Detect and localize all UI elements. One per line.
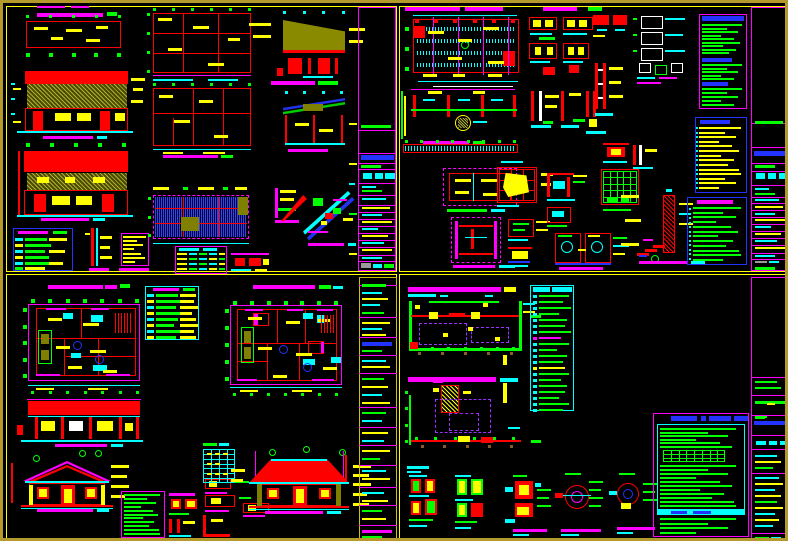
s4-legend-header-seg <box>533 287 550 292</box>
s4-specs-text2-line <box>660 481 720 483</box>
s1-elev2-markers-mark <box>74 143 78 147</box>
s2-beam-elev-extra-seg <box>473 121 487 123</box>
s1-legend-rows-seg <box>25 244 51 247</box>
s4-detail-group2-seg <box>455 521 477 523</box>
s3-finish-table-rows-seg <box>180 318 196 321</box>
s3-finish-table-rows-seg <box>180 330 194 333</box>
s2-footing-dets-seg <box>603 143 629 145</box>
s2-iso-box2 <box>655 65 667 75</box>
s2-notes-top-text3-line <box>702 92 727 94</box>
s4-specs-text2-line <box>660 469 708 471</box>
s2-found-dimlines-seg <box>508 17 509 75</box>
s1-detail-right-seg <box>231 253 269 255</box>
s3-gable-marker1 <box>79 450 86 457</box>
s1-elev1-caption-seg <box>97 136 107 139</box>
s3-titleblock-content-seg <box>362 342 392 346</box>
s4-detail-valve2-seg <box>589 497 603 499</box>
s1-long-section-labels-seg <box>66 29 82 32</box>
s3-hip-dims-seg <box>343 451 344 481</box>
s2-det-box2-seg <box>508 247 532 249</box>
s2-left-details-seg <box>613 15 627 25</box>
s2-tbeam-fills-seg <box>578 47 584 55</box>
s3-finish-table-rows-seg <box>147 324 154 327</box>
s1-stair-detail-seg <box>280 190 296 193</box>
s2-titleblock-content-seg <box>755 206 783 208</box>
s4-sanit-grounds-mark <box>443 445 446 448</box>
s3-plan1-room-labels-seg <box>90 350 106 353</box>
s2-wallsect-hatch <box>664 196 674 252</box>
s1-plan2-walls-seg <box>153 113 251 114</box>
s3-titleblock-content-seg <box>362 366 390 368</box>
s4-elec-symbols-seg <box>495 337 500 341</box>
s2-colbase-details-seg <box>545 95 559 98</box>
s4-specs-minitable-col <box>694 450 695 462</box>
s4-legend-rows-seg <box>539 355 567 357</box>
s3-titleblock-content-seg <box>362 536 382 538</box>
s2-found-dims-below-seg <box>418 81 518 82</box>
s2-notes-top-text2-line <box>702 64 742 66</box>
s1-titleblock-content-seg <box>361 263 371 268</box>
s2-toilet-side-seg <box>553 181 565 189</box>
s1-section1-labels-l-seg <box>249 23 271 26</box>
s2-notes-right-text-line <box>693 240 733 242</box>
s2-titleblock-dividers-seg <box>751 253 788 254</box>
s2-spec-rows-line <box>699 141 719 143</box>
s2-found-columns-mark <box>415 19 419 23</box>
s4-specs-text1-line <box>660 428 736 430</box>
s1-schedule-cells-seg <box>219 268 225 270</box>
s3-plan1-markers-left-mark <box>23 308 27 312</box>
s1-legend-rows-seg <box>25 267 45 270</box>
s2-found-labels-seg <box>483 27 499 30</box>
s4-legend-rows-seg <box>539 403 569 405</box>
s3-titleblock-content-seg <box>362 284 386 287</box>
s1-plan2-dims-seg <box>203 152 225 154</box>
s4-detail-valve2-seg <box>589 505 601 507</box>
s3-titleblock-dividers-seg <box>359 525 397 526</box>
s2-notes-right-text-line <box>693 245 726 247</box>
s2-spec-ticks-mark <box>696 164 698 166</box>
s3-titleblock-content-seg <box>362 334 386 336</box>
s3-winsched-header-seg <box>203 443 217 446</box>
s4-title2-seg <box>500 378 518 382</box>
s1-legend-rows-seg <box>18 231 48 234</box>
s2-found-dims-below-seg <box>423 74 437 77</box>
s4-legend-rows-seg <box>539 319 567 321</box>
s1-plan1-markers-left-mark <box>147 70 150 73</box>
s2-toilet-side-seg <box>567 177 570 197</box>
s1-schedule-cells-seg <box>199 258 207 260</box>
s2-titleblock-content-seg <box>755 213 775 215</box>
s2-caja-items-seg <box>552 211 564 217</box>
s3-plan2-wall-accents-seg <box>317 309 333 311</box>
s2-toilet-side-seg <box>547 199 575 201</box>
s1-elev2-openings-seg <box>76 196 92 205</box>
s3-finish-table-rows-seg <box>147 330 154 333</box>
s4-titleblock-content-seg <box>755 519 779 521</box>
s4-sanit-fittings-mark <box>493 437 496 440</box>
s3-notes-text-line <box>124 494 160 496</box>
s2-colbase-details-seg <box>589 119 597 127</box>
s3-corner-det-items-seg <box>205 510 229 512</box>
s2-beam-elev-seg <box>411 109 517 111</box>
s2-notes-top-text1-line <box>702 31 738 33</box>
s4-details-label-seg <box>407 466 429 469</box>
s2-beam-elev-seg <box>481 95 484 117</box>
s1-section2-body-seg <box>295 123 309 126</box>
s2-wc-bowl2 <box>591 241 603 253</box>
s1-titleblock-dividers-seg <box>358 247 396 248</box>
s3-titleblock-content-seg <box>362 478 390 480</box>
s2-notes-top-text1-line <box>702 45 723 47</box>
s1-vertical-detail-seg <box>100 256 112 259</box>
s1-section1-body-seg <box>277 68 283 76</box>
s2-tank-section-lines-seg <box>455 221 458 259</box>
s1-small-table-rows-line <box>123 248 134 250</box>
s1-schedule-cells-seg <box>189 263 197 265</box>
s1-legend-rows-seg <box>15 267 23 270</box>
s1-roofplan-labels-seg <box>235 187 247 190</box>
s1-plan1-markers-top-mark <box>172 8 175 11</box>
s3-notes-text-line <box>124 533 160 535</box>
s2-wc-labels-seg <box>613 253 625 255</box>
s3-title2-seg <box>319 285 331 289</box>
s2-wallsect-steps-seg <box>653 245 665 248</box>
cad-drawing-canvas <box>0 0 788 541</box>
s1-title-seg <box>107 12 117 16</box>
s2-notes-top-text2-line <box>702 75 721 77</box>
s3-plan1-wall-accents-seg <box>46 308 66 310</box>
s1-plan2-markers-mark <box>172 83 175 86</box>
s2-spec-ticks-mark <box>696 159 698 161</box>
s1-sitemap-items-seg <box>321 221 327 225</box>
s1-section2-markers-mark <box>322 91 325 94</box>
s3-winsched-cells-seg <box>215 473 220 475</box>
s1-titleblock-dividers-seg <box>358 163 396 164</box>
s1-titleblock-dividers-seg <box>358 219 396 220</box>
s3-notes-text-line <box>124 525 149 527</box>
s2-notes-right-nums-mark <box>689 258 691 260</box>
s3-finish-table-rows-seg <box>180 336 196 339</box>
s1-mid-labels-seg <box>131 78 145 81</box>
s4-sanit-labels-seg <box>503 383 507 403</box>
s2-spec-ticks-mark <box>696 187 698 189</box>
s2-notes-top-text1-line <box>702 38 734 40</box>
s1-section2-body-seg <box>285 115 287 143</box>
s4-sanit-walls-seg <box>409 395 411 445</box>
s4-detail-valve1-seg <box>537 489 551 491</box>
s2-left-details-seg <box>597 29 607 31</box>
s1-elev1-openings-seg <box>77 113 91 121</box>
s1-elev2-ground-seg <box>18 151 20 215</box>
s2-footing-dets-seg <box>603 161 627 163</box>
s3-gable-labels-seg <box>111 475 127 478</box>
s3-titleblock-content-seg <box>362 432 388 434</box>
s2-mesh-grid-row <box>603 177 637 178</box>
s1-section2-caption-seg <box>288 149 328 152</box>
s2-spec-rows-line <box>699 132 725 134</box>
s3-titleblock-dividers-seg <box>359 505 397 506</box>
s3-finish-table-rows-seg <box>156 300 180 303</box>
s3-plan1-room-labels-seg <box>56 346 70 349</box>
s1-vertical-detail-seg <box>85 233 90 235</box>
s2-beam-det-fills-seg <box>533 20 541 27</box>
s1-sitemap-items-seg <box>325 213 333 219</box>
s1-schedule-cells-seg <box>177 258 187 260</box>
s3-winsched-cells-seg <box>223 473 228 475</box>
s4-sanit-fittings-mark <box>454 437 457 440</box>
s1-axis-markers-mid-mark <box>49 53 53 57</box>
s4-legend-rows-seg <box>539 337 561 339</box>
s1-elev2-caption-seg <box>93 218 105 221</box>
s2-wallsect-steps-seg <box>645 249 657 252</box>
s1-stair-detail-seg <box>275 188 278 218</box>
s3-plan2-car-body-seg <box>244 347 251 359</box>
s4-titleblock-content-seg <box>755 537 769 540</box>
s2-found-axes-mark <box>405 67 409 71</box>
s3-winsched-header-seg <box>219 443 229 446</box>
s4-specs-text1-line <box>660 439 696 441</box>
s4-elec-grounds-mark <box>464 352 467 355</box>
s3-plan1-markers-bottom-mark <box>84 391 87 394</box>
s3-title2-seg <box>253 285 315 289</box>
s2-tank-caption-seg <box>453 265 495 268</box>
s3-titleblock-content-seg <box>362 492 384 494</box>
s2-det-box2-seg <box>512 251 528 259</box>
s4-specs-text2-line <box>660 465 736 467</box>
s4-legend-rows-seg <box>539 367 565 369</box>
s2-notes-top-text1-line <box>702 24 742 26</box>
s1-plan2-labels-seg <box>199 100 213 103</box>
s4-detail-group1-seg <box>427 481 433 491</box>
s3-title1-seg <box>120 284 130 288</box>
s3-lshape-det-seg <box>211 519 223 522</box>
s2-white-box-labels-seg <box>665 50 685 52</box>
s2-spec-rows-line <box>699 159 734 161</box>
s2-notes-right-header-seg <box>697 200 733 204</box>
s2-det-box1-items-seg <box>513 229 525 231</box>
s2-footing-ticks-mark <box>467 140 470 143</box>
s3-titleblock-dividers-seg <box>359 317 397 318</box>
s2-found-labels-seg <box>448 57 462 60</box>
s1-titleblock-dividers-seg <box>358 240 396 241</box>
s1-elev1-caption-seg <box>43 136 93 139</box>
s2-column-fill2 <box>503 51 515 66</box>
s3-corner-det-items-seg <box>243 515 265 517</box>
s1-elev2-roofband <box>24 151 128 172</box>
s4-detail-valve2-seg <box>589 481 603 483</box>
s3-gable-labels-seg <box>111 485 129 488</box>
s4-specs-text3-line <box>660 518 736 520</box>
s4-sanit-axis-mark <box>405 440 408 443</box>
s2-colbase-details-seg <box>539 91 542 121</box>
s4-detail-valve3-seg <box>621 503 631 509</box>
s2-titleblock-dividers-seg <box>751 224 788 225</box>
s3-finish-table-rows-seg <box>147 318 154 321</box>
s1-titleblock-content-seg <box>362 235 388 237</box>
s4-elec-feeder-seg <box>411 315 519 317</box>
s1-section1-markers-mark <box>303 11 306 14</box>
s4-detail-group2-seg <box>455 527 471 529</box>
s2-white-box-labels-seg <box>665 34 683 36</box>
s3-notes-text-line <box>124 510 153 512</box>
s3-titleblock-content-seg <box>362 500 388 502</box>
s1-vertical-detail-seg <box>91 228 94 266</box>
s3-finish-table-rows-seg <box>156 294 178 297</box>
s2-found-symbol <box>461 41 469 49</box>
s4-legend-rows-seg <box>533 301 537 304</box>
s1-plan1-walls-seg <box>183 13 184 73</box>
s4-titleblock-dividers-seg <box>751 395 788 396</box>
s3-notes-text-line <box>124 498 147 500</box>
s3-titleblock-content-seg <box>362 304 380 306</box>
s1-vertical-detail-seg <box>89 268 109 271</box>
s4-legend-rows-seg <box>539 379 561 381</box>
s2-column-fill1 <box>413 26 425 38</box>
s2-titleblock-dividers-seg <box>751 163 788 164</box>
s2-colbase-details-seg <box>561 91 564 121</box>
s4-titleblock-content-seg <box>755 513 775 515</box>
s4-specs-text2-line <box>660 497 712 499</box>
s3-plan2-partitions-seg <box>277 309 278 343</box>
s3-plan2-markers-left-mark <box>225 326 229 330</box>
s4-legend-rows-seg <box>539 361 563 363</box>
s3-titleblock-content-seg <box>362 350 382 352</box>
s1-plan1-labels-seg <box>168 48 182 51</box>
s3-plan1-markers-top-mark <box>100 299 104 303</box>
s2-tbeam-fills-seg <box>563 61 583 63</box>
s4-elec-labels-seg <box>485 295 493 297</box>
s1-detail-right-seg <box>255 269 267 271</box>
s4-specs-text2-line <box>660 485 732 487</box>
s4-legend-rows-seg <box>533 361 537 364</box>
s3-corner-det-items-seg <box>211 498 221 504</box>
s3-plan1-fixtures-seg <box>63 313 73 319</box>
s2-iso-box1 <box>639 63 651 73</box>
s4-titleblock-content-seg <box>755 495 781 497</box>
s3-finish-table-rows-seg <box>180 312 192 315</box>
s2-left-column-det-seg <box>603 63 606 109</box>
s2-titleblock-content-seg <box>755 199 779 201</box>
s1-small-table-rows-line <box>123 236 146 238</box>
s2-left-column-det-seg <box>595 113 613 116</box>
s1-roofplan-labels-seg <box>223 187 228 190</box>
s4-elec-grounds-mark <box>510 352 513 355</box>
s2-footing-ticks-mark <box>420 140 423 143</box>
s1-section2-body-seg <box>313 115 315 143</box>
s4-legend-rows-seg <box>539 409 563 411</box>
s3-plan2-markers-bottom-mark <box>250 393 253 396</box>
s2-toilet-side-seg <box>573 181 585 183</box>
s2-mesh-items-seg <box>607 197 617 203</box>
s4-sanit-main-seg <box>458 436 470 442</box>
s1-elev1-openings-seg <box>100 111 110 130</box>
s1-titleblock-content-seg <box>362 186 376 188</box>
s4-legend-rows-seg <box>539 325 565 327</box>
s4-elec-labels-seg <box>503 355 507 365</box>
s4-detail-valve2-seg <box>565 473 581 475</box>
s1-titleblock <box>358 7 396 271</box>
s2-found-dimlines-seg <box>458 17 459 75</box>
s4-specs-text1-line <box>660 442 720 444</box>
s4-specs-text2-line <box>660 477 696 479</box>
s1-schedule-cells-seg <box>209 253 217 255</box>
s3-plan1-markers-bottom-mark <box>119 391 122 394</box>
s1-roofplan-labels-seg <box>153 243 249 244</box>
s1-schedule-cells-seg <box>203 248 217 251</box>
s1-section1-body-seg <box>303 76 333 78</box>
s1-long-section-labels-seg <box>51 37 63 40</box>
s2-notes-top-text3-line <box>702 104 734 106</box>
s2-titleblock-dividers-seg <box>751 231 788 232</box>
s2-spec-rows-line <box>699 187 719 189</box>
s1-section2-body-seg <box>319 129 333 132</box>
s1-plan2-labels-seg <box>174 120 190 123</box>
s4-legend-rows-seg <box>539 331 571 333</box>
s2-left-column-det-seg <box>609 67 623 70</box>
s1-detail-right-seg <box>235 258 245 266</box>
s2-notes-right-text-line <box>693 231 738 233</box>
s2-found-axes-mark <box>405 27 409 31</box>
s1-schedule-cells-seg <box>179 248 199 251</box>
s3-finish-table-rows-seg <box>156 318 178 321</box>
s3-elev1-wall-seg <box>35 417 38 439</box>
s1-section1-labels-l-seg <box>253 35 271 38</box>
s1-elev1-dims-seg <box>13 121 21 123</box>
s2-titleblock-content-seg <box>755 193 775 195</box>
s4-title1-seg <box>408 287 501 292</box>
s1-titleblock-content-seg <box>362 257 382 259</box>
s4-sanit-fittings-mark <box>473 437 476 440</box>
s2-notes-right-nums-mark <box>689 249 691 251</box>
s4-elec-symbols-seg <box>483 303 488 307</box>
s3-beam-details-seg <box>169 519 172 533</box>
s3-notes-text-line <box>124 506 141 508</box>
s1-detail-right-seg <box>263 259 269 265</box>
s3-titleblock-content-seg <box>362 518 386 520</box>
s4-detail-group1-seg <box>413 481 419 491</box>
s2-titleblock-content-seg <box>755 188 769 190</box>
s2-beam-det-fills-seg <box>563 33 587 35</box>
s1-margin-notes-seg <box>349 183 355 185</box>
s3-hip-marker1 <box>269 449 276 456</box>
s2-wallsect-steps-seg <box>643 239 653 241</box>
s4-sanit-fittings-mark <box>434 437 437 440</box>
s2-titleblock-dividers-seg <box>751 147 788 148</box>
s1-sitemap-caption-seg <box>348 243 356 246</box>
s3-titleblock-content-seg <box>362 510 382 512</box>
s2-colbase-details-seg <box>569 93 581 96</box>
s1-titleblock-content-seg <box>362 228 378 230</box>
s1-sitemap-items-seg <box>333 208 341 214</box>
s1-plan2-labels-seg <box>214 135 228 138</box>
s4-titleblock-content-seg <box>755 381 777 383</box>
s4-legend-header-seg <box>552 287 572 292</box>
s4-titleblock-content-seg <box>755 455 777 457</box>
s1-titleblock-dividers-seg <box>358 169 396 170</box>
s1-plan1-dims-seg <box>153 75 251 76</box>
s3-finish-table-rows-seg <box>147 294 154 297</box>
s3-plan1-door-arc1 <box>73 341 82 350</box>
s3-title2-seg <box>333 286 343 289</box>
s3-gable-labels-seg <box>111 465 129 468</box>
s2-pozo-labels-seg <box>501 161 523 163</box>
s4-specs-divider-segs-seg <box>693 511 711 514</box>
s4-detail-valve1-seg <box>513 475 527 477</box>
s2-titleblock-content-seg <box>768 173 776 179</box>
s4-titleblock-dividers-seg <box>751 533 788 534</box>
s1-axis-markers-top-mark <box>26 15 29 18</box>
